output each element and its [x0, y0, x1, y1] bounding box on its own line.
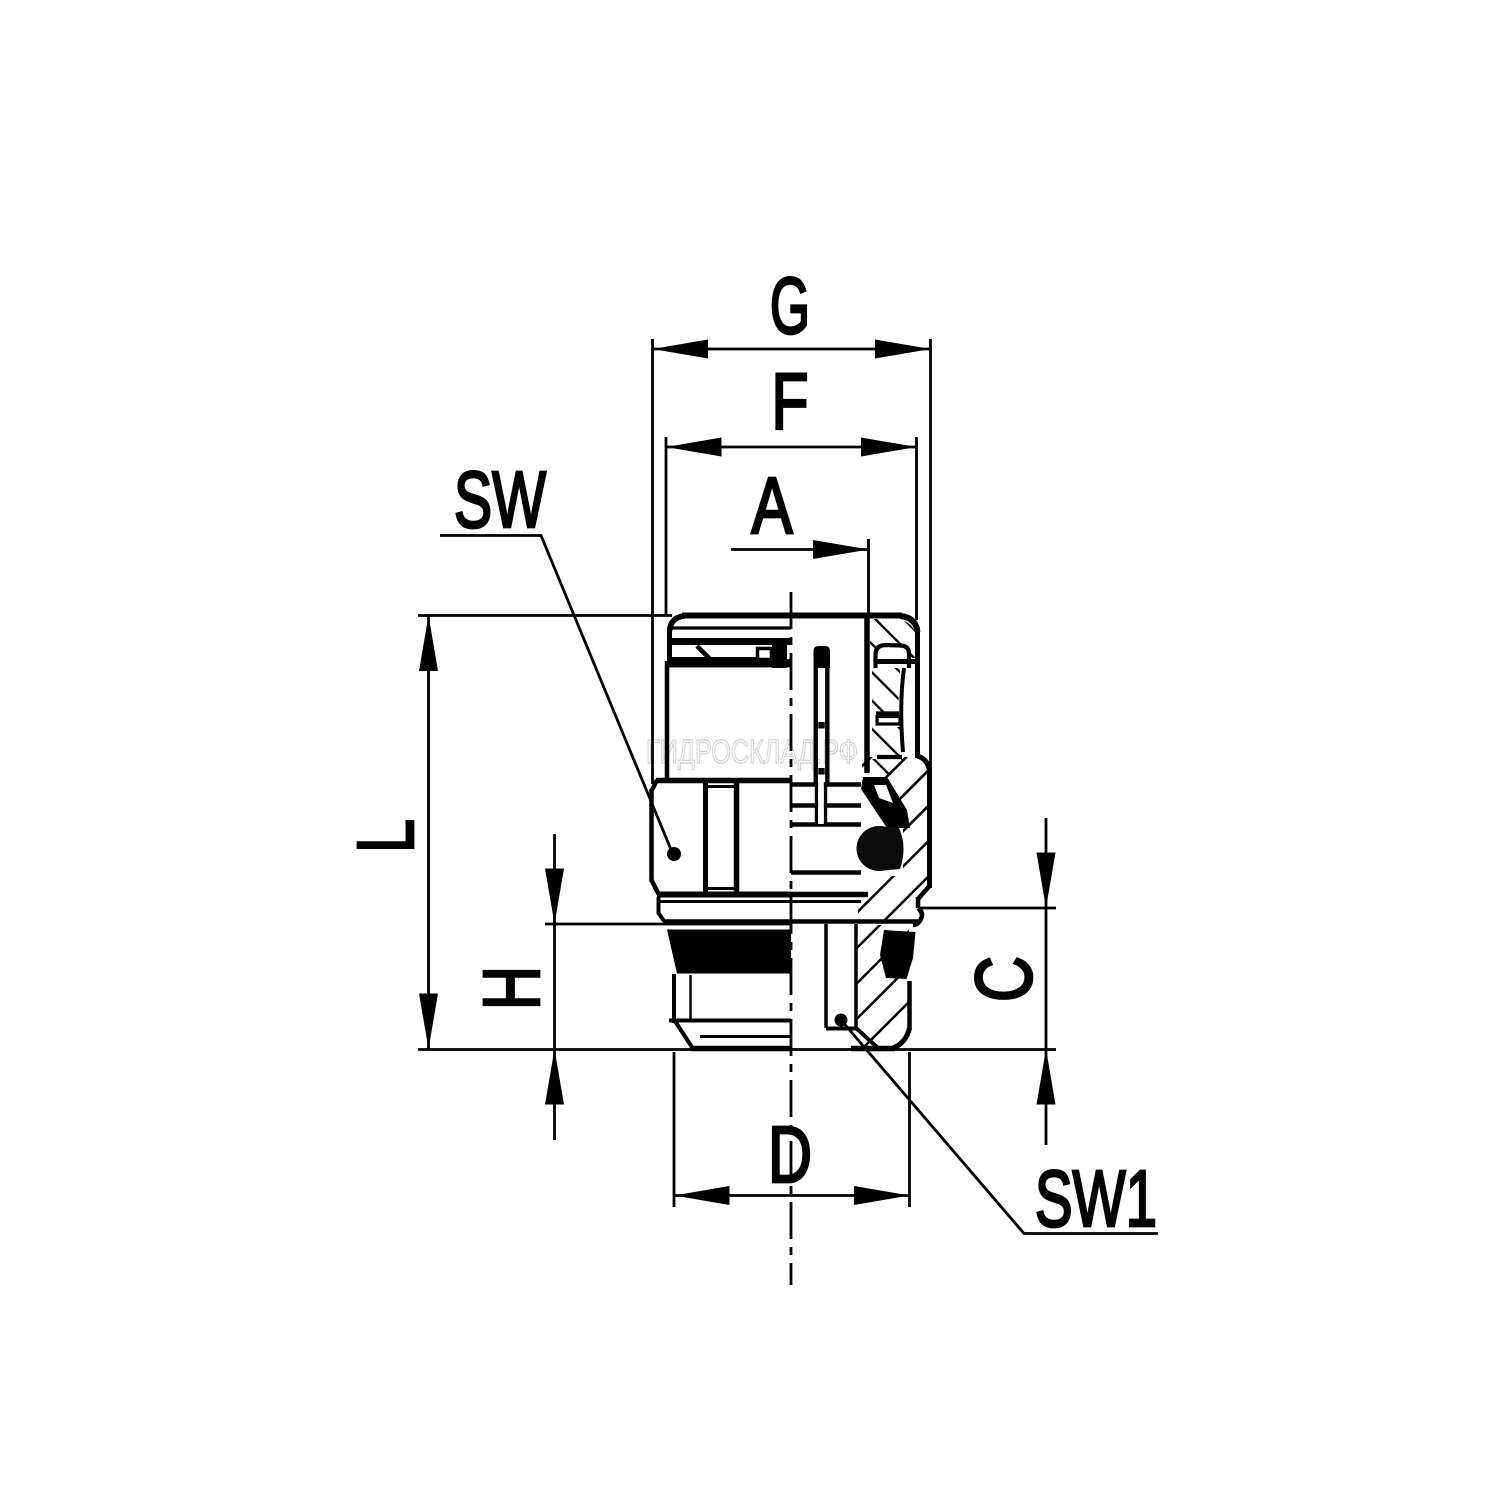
svg-text:SW: SW: [454, 455, 546, 544]
svg-text:F: F: [772, 357, 809, 446]
svg-text:G: G: [770, 261, 810, 350]
svg-text:A: A: [752, 461, 793, 550]
svg-text:C: C: [959, 956, 1048, 1002]
svg-text:L: L: [341, 819, 430, 853]
svg-text:H: H: [467, 966, 556, 1010]
svg-text:SW1: SW1: [1035, 1154, 1157, 1243]
